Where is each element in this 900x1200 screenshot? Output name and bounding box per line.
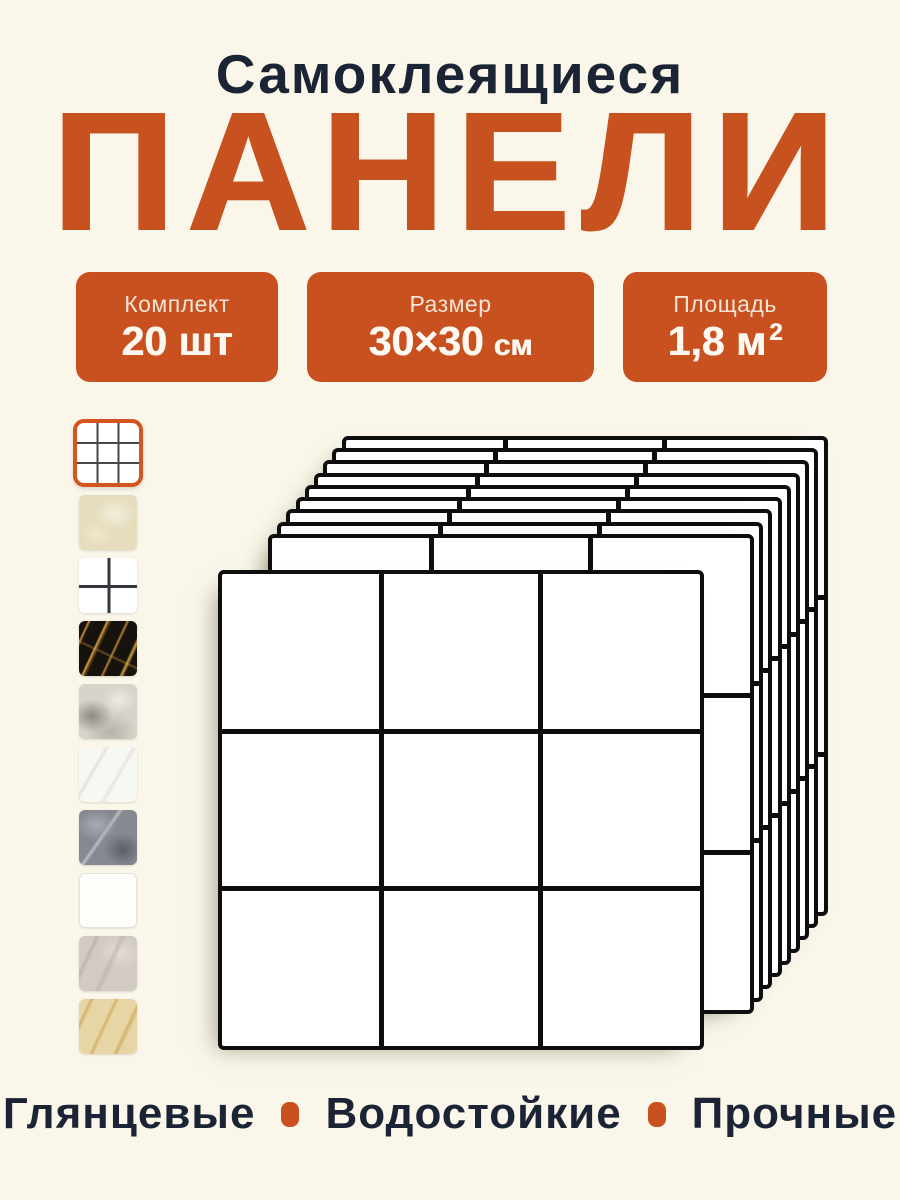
panel-stack [218,570,704,1050]
thumbnail-white-marble [79,747,137,802]
badge-kit: Комплект 20 шт [76,272,278,382]
badge-kit-value: 20 шт [121,321,232,362]
page-title: ПАНЕЛИ [0,86,900,259]
thumbnail-light-grey-marble [79,936,137,991]
feature-durable: Прочные [692,1090,897,1138]
features-row: Глянцевые Водостойкие Прочные [0,1090,900,1138]
badge-kit-value-text: 20 шт [121,321,232,362]
badge-size-unit: см [494,331,533,361]
badge-kit-label: Комплект [124,293,230,316]
thumbnail-beige-marble [79,495,137,550]
product-infographic: Самоклеящиеся ПАНЕЛИ Комплект 20 шт Разм… [0,0,900,1200]
thumbnail-white-grid-3x3 [73,419,143,487]
thumbnail-plain-white [79,873,137,928]
thumbnail-grey-white-marble [79,684,137,739]
badge-size-value-text: 30×30 [368,321,483,362]
thumbnail-rail [73,419,143,1054]
badge-area-value: 1,8 м2 [667,321,782,362]
feature-glossy: Глянцевые [3,1090,256,1138]
badge-size-value: 30×30см [368,321,532,362]
bullet-icon [281,1102,299,1127]
badges-row: Комплект 20 шт Размер 30×30см Площадь 1,… [0,272,900,382]
badge-area-label: Площадь [673,293,777,316]
badge-area: Площадь 1,8 м2 [623,272,827,382]
bullet-icon [648,1102,666,1127]
thumbnail-white-grid-2x2 [79,558,137,613]
thumbnail-black-gold-marble [79,621,137,676]
thumbnail-beige-gold-marble [79,999,137,1054]
badge-size-label: Размер [409,293,491,316]
badge-area-sup: 2 [769,321,782,345]
panel-front [218,570,704,1050]
thumbnail-dark-grey-marble [79,810,137,865]
feature-waterproof: Водостойкие [325,1090,621,1138]
badge-size: Размер 30×30см [307,272,594,382]
badge-area-value-text: 1,8 м [667,321,766,362]
